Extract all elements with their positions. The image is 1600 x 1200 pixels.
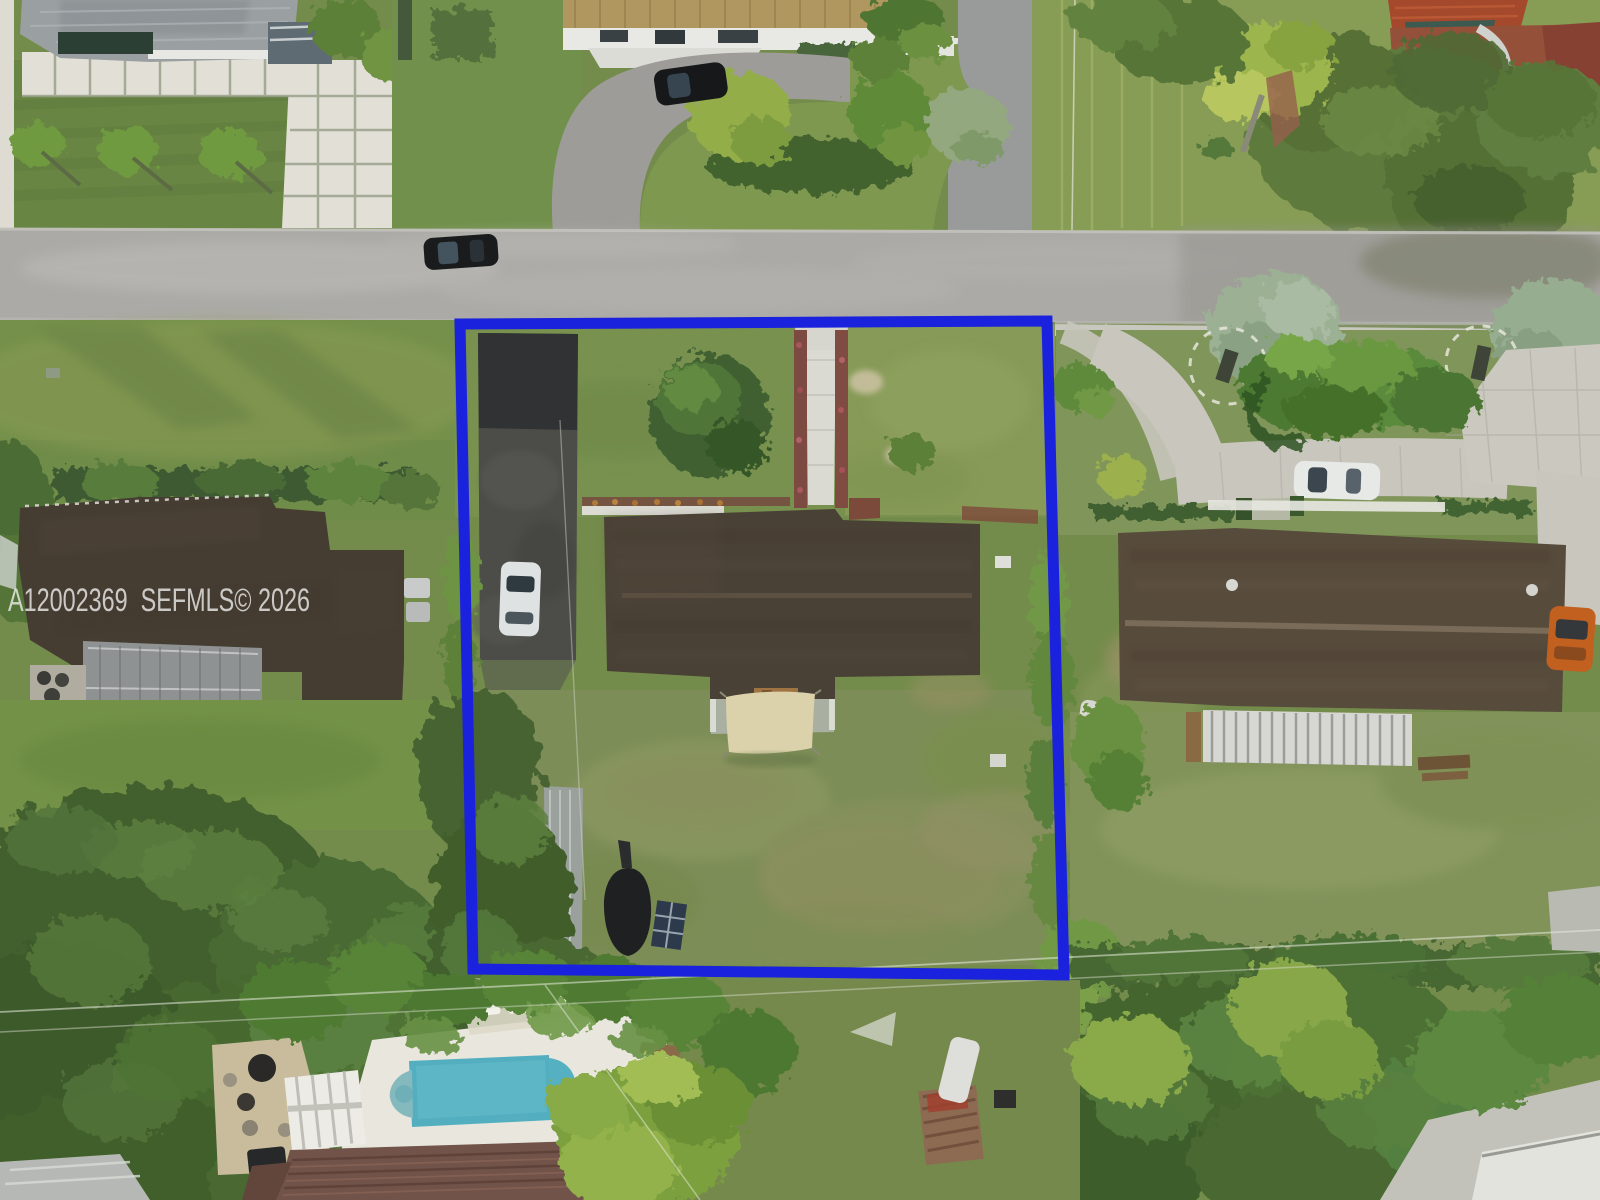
svg-text:A12002369 SEFMLS© 2026: A12002369 SEFMLS© 2026 [8, 582, 310, 618]
